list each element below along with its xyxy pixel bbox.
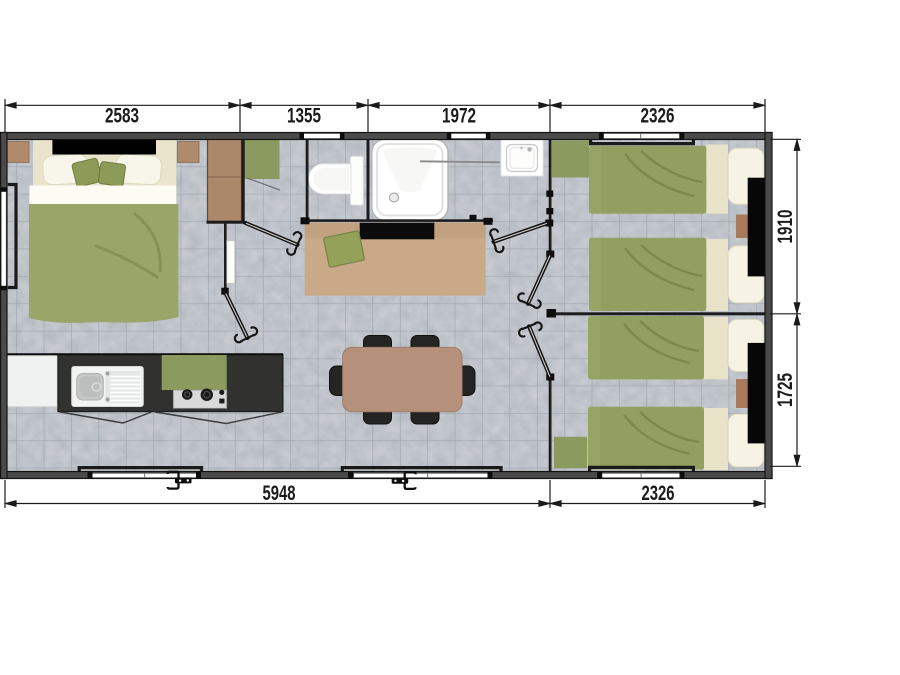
svg-text:1910: 1910 (773, 209, 797, 243)
svg-text:1725: 1725 (773, 373, 797, 407)
svg-text:2583: 2583 (105, 104, 139, 128)
svg-text:1972: 1972 (442, 104, 476, 128)
svg-text:2326: 2326 (641, 104, 675, 128)
svg-text:2326: 2326 (642, 481, 675, 505)
svg-text:5948: 5948 (263, 481, 296, 505)
svg-text:1355: 1355 (287, 104, 321, 128)
